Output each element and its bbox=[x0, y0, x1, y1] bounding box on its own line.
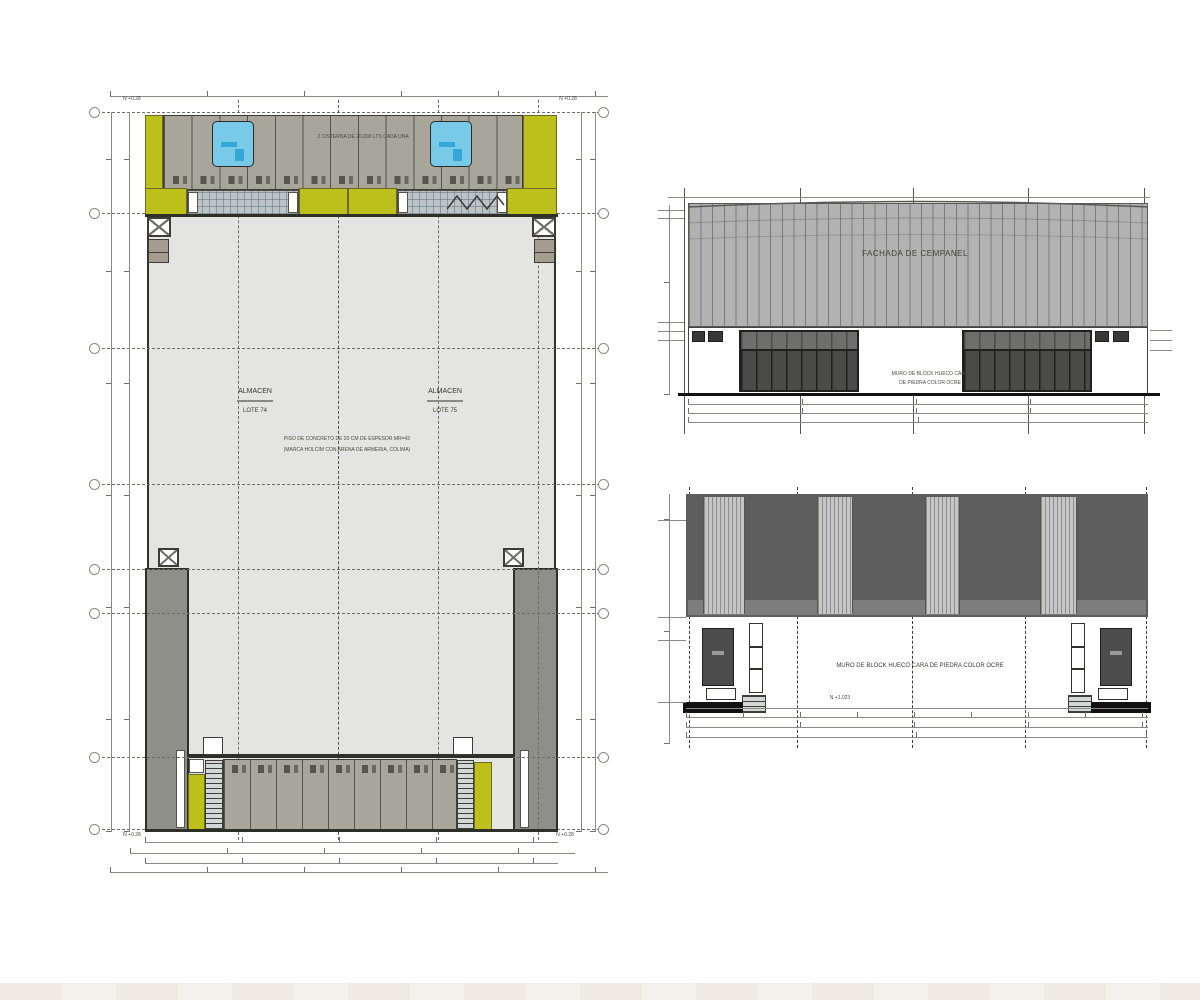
rear-wall-band bbox=[688, 600, 1146, 615]
rear-dim-line bbox=[686, 712, 1148, 718]
rear-wall-note: MURO DE BLOCK HUECO CARA DE PIEDRA COLOR… bbox=[790, 663, 1050, 670]
rear-left-tick bbox=[658, 702, 686, 703]
rear-left-dim bbox=[664, 494, 670, 744]
rear-left-tick bbox=[658, 617, 686, 618]
rear-door-right bbox=[1100, 628, 1132, 686]
footer-strip bbox=[0, 983, 1200, 1000]
drawing-canvas: 2 CISTERNA DE 20,000 LTS CADA UNA bbox=[0, 0, 1200, 1000]
rear-louver-panel bbox=[703, 497, 745, 614]
rear-left-tick bbox=[658, 520, 686, 521]
rear-louver-panel bbox=[817, 497, 853, 614]
rear-step-left bbox=[706, 688, 736, 700]
rear-louver-panel bbox=[1040, 497, 1077, 614]
rear-wall bbox=[686, 494, 1148, 617]
rear-window-column-right bbox=[1071, 623, 1085, 693]
rear-window-column-left bbox=[749, 623, 763, 693]
rear-dim-line bbox=[686, 732, 1148, 738]
rear-level-note: N +1.023 bbox=[810, 696, 870, 702]
rear-stairs-right bbox=[1068, 695, 1092, 713]
rear-dim-line bbox=[686, 722, 1148, 728]
rear-elevation-view: MURO DE BLOCK HUECO CARA DE PIEDRA COLOR… bbox=[0, 0, 1200, 1000]
rear-louver-panel bbox=[925, 497, 960, 614]
rear-step-right bbox=[1098, 688, 1128, 700]
rear-left-tick bbox=[658, 640, 686, 641]
rear-baseline bbox=[686, 708, 1148, 709]
rear-door-left bbox=[702, 628, 734, 686]
rear-stairs-left bbox=[742, 695, 766, 713]
